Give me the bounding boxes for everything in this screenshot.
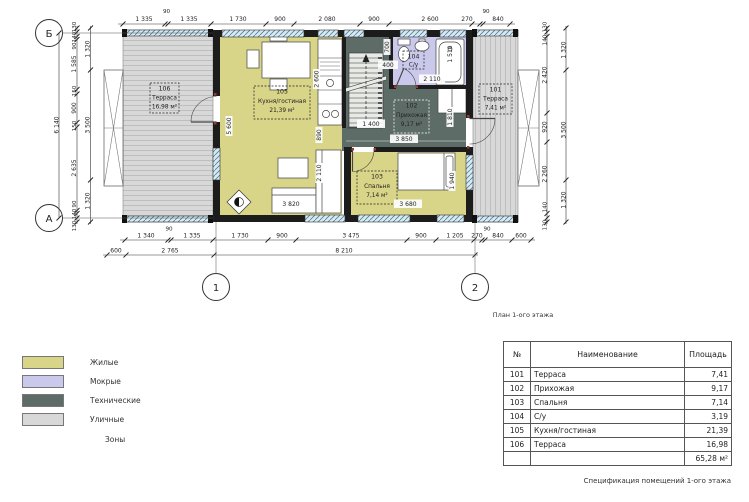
svg-text:Терраса: Терраса bbox=[482, 97, 508, 103]
dim-label: 1 320 bbox=[561, 41, 568, 58]
cell-empty bbox=[504, 452, 531, 466]
window bbox=[400, 30, 427, 37]
window bbox=[466, 155, 473, 190]
cell-num: 106 bbox=[504, 438, 531, 452]
dim-label: 1 320 bbox=[85, 40, 92, 57]
bed bbox=[398, 153, 455, 190]
dim-label: 2 420 bbox=[542, 66, 549, 83]
dim-label: 1 335 bbox=[183, 233, 200, 240]
legend-caption: Зоны bbox=[105, 435, 202, 444]
chair bbox=[247, 50, 259, 68]
legend-label: Мокрые bbox=[90, 377, 121, 386]
dim-label: 270 bbox=[471, 233, 483, 240]
svg-text:105: 105 bbox=[276, 89, 288, 96]
cell-empty bbox=[531, 452, 685, 466]
dim-label: 150 bbox=[72, 120, 78, 131]
dim-label: 90 bbox=[483, 227, 491, 233]
window bbox=[213, 148, 220, 180]
window bbox=[305, 215, 345, 222]
dim-label: 1 730 bbox=[231, 233, 248, 240]
zones-legend: Жилые Мокрые Технические Уличные Зоны bbox=[22, 356, 202, 444]
dim-label: 920 bbox=[542, 121, 549, 133]
dim-label: 1 320 bbox=[85, 192, 92, 209]
dim-label: 130 bbox=[72, 21, 78, 32]
dim-label: 2 600 bbox=[421, 16, 438, 23]
table-row: 101 Терраса 7,41 bbox=[504, 368, 732, 382]
cell-name: Прихожая bbox=[531, 382, 685, 396]
svg-text:Терраса: Терраса bbox=[151, 96, 177, 102]
dim-label: 130 bbox=[543, 21, 549, 32]
dim-label: 1 335 bbox=[135, 16, 152, 23]
dim-label: 900 bbox=[274, 16, 286, 23]
cell-num: 102 bbox=[504, 382, 531, 396]
dining-table bbox=[262, 42, 310, 78]
svg-text:7,14 м²: 7,14 м² bbox=[366, 192, 387, 199]
svg-text:16,98 м²: 16,98 м² bbox=[152, 104, 177, 111]
dim-label: 2 635 bbox=[71, 159, 78, 176]
svg-text:102: 102 bbox=[406, 103, 418, 110]
svg-text:Спальня: Спальня bbox=[364, 184, 390, 190]
axis-label-1: 1 bbox=[213, 283, 219, 294]
legend-item: Жилые bbox=[22, 356, 202, 369]
table-row: 103 Спальня 7,14 bbox=[504, 396, 732, 410]
legend-label: Уличные bbox=[90, 415, 124, 424]
dim-label: 3 680 bbox=[399, 201, 416, 208]
window bbox=[437, 215, 464, 222]
dim-label: 1 335 bbox=[180, 16, 197, 23]
cell-num: 101 bbox=[504, 368, 531, 382]
dim-label: 140 bbox=[543, 34, 549, 45]
cell-num: 105 bbox=[504, 424, 531, 438]
spec-table: № Наименование Площадь 101 Терраса 7,41 … bbox=[503, 341, 732, 466]
svg-text:101: 101 bbox=[490, 87, 502, 94]
dim-label: 700 bbox=[384, 41, 391, 53]
col-header-num: № bbox=[504, 342, 531, 368]
cell-name: Спальня bbox=[531, 396, 685, 410]
dim-label: 90 bbox=[72, 200, 78, 208]
dim-label: 3 475 bbox=[342, 233, 359, 240]
dim-label: 2 110 bbox=[316, 164, 323, 181]
dim-label: 3 820 bbox=[282, 201, 299, 208]
dim-label: 1 510 bbox=[447, 45, 454, 62]
dim-label: 8 210 bbox=[335, 248, 352, 255]
legend-label: Технические bbox=[90, 396, 141, 405]
dim-label: 90 bbox=[72, 42, 78, 50]
dim-label: 900 bbox=[276, 233, 288, 240]
dim-label: 3 500 bbox=[85, 116, 92, 133]
axis-label-a: А bbox=[46, 214, 53, 225]
dim-label: 1 320 bbox=[561, 191, 568, 208]
dim-label: 840 bbox=[492, 233, 504, 240]
dim-label: 5 600 bbox=[226, 117, 233, 134]
spec-table-caption: Спецификация помещений 1-ого этажа bbox=[503, 477, 731, 485]
dim-label: 90 bbox=[163, 9, 171, 15]
dim-label: 1 340 bbox=[137, 233, 154, 240]
dim-label: 900 bbox=[71, 102, 78, 114]
outdoor-stairs-right bbox=[518, 70, 539, 186]
outdoor-stairs-left bbox=[104, 70, 123, 186]
svg-text:Прихожая: Прихожая bbox=[396, 113, 427, 119]
dim-label: 1 585 bbox=[71, 55, 78, 72]
dim-label: 2 765 bbox=[161, 248, 178, 255]
col-header-name: Наименование bbox=[531, 342, 685, 368]
table-row: 104 С/у 3,19 bbox=[504, 410, 732, 424]
dim-label: 150 bbox=[72, 85, 78, 96]
svg-text:9,17 м²: 9,17 м² bbox=[401, 121, 422, 128]
table-total-row: 65,28 м² bbox=[504, 452, 732, 466]
floor-plan: 106 Терраса 16,98 м² 105 Кухня/гостиная … bbox=[0, 0, 749, 340]
svg-text:7,41 м²: 7,41 м² bbox=[485, 105, 506, 112]
svg-text:Кухня/гостиная: Кухня/гостиная bbox=[258, 99, 306, 105]
legend-item: Мокрые bbox=[22, 375, 202, 388]
cell-area: 16,98 bbox=[685, 438, 732, 452]
cell-name: Терраса bbox=[531, 438, 685, 452]
svg-text:103: 103 bbox=[371, 174, 383, 181]
terrace-railing bbox=[473, 30, 518, 36]
col-header-area: Площадь bbox=[685, 342, 732, 368]
dim-label: 600 bbox=[515, 233, 527, 240]
coffee-table bbox=[278, 158, 308, 178]
legend-swatch-outdoor bbox=[22, 413, 64, 426]
axis-label-b: Б bbox=[46, 29, 53, 40]
dim-label: 3 850 bbox=[395, 136, 412, 143]
cell-area: 21,39 bbox=[685, 424, 732, 438]
legend-swatch-wet bbox=[22, 375, 64, 388]
dim-label: 890 bbox=[316, 129, 323, 141]
dim-label: 3 500 bbox=[561, 121, 568, 138]
legend-item: Уличные bbox=[22, 413, 202, 426]
kitchen-counter bbox=[318, 39, 342, 125]
terrace-railing bbox=[124, 216, 213, 222]
dim-label: 130 bbox=[72, 220, 78, 231]
axis-label-2: 2 bbox=[472, 283, 478, 294]
window bbox=[318, 30, 338, 37]
dim-label: 1 205 bbox=[446, 233, 463, 240]
dim-label: 270 bbox=[461, 16, 473, 23]
dim-label: 1 730 bbox=[229, 16, 246, 23]
dim-label: 1 810 bbox=[447, 108, 454, 125]
dim-label: 1 400 bbox=[362, 121, 379, 128]
svg-text:104: 104 bbox=[408, 54, 420, 61]
dim-label: 900 bbox=[368, 16, 380, 23]
dim-label: 900 bbox=[415, 233, 427, 240]
cell-area: 9,17 bbox=[685, 382, 732, 396]
cell-name: С/у bbox=[531, 410, 685, 424]
dim-label: 2 110 bbox=[423, 76, 440, 83]
plan-caption: План 1-ого этажа bbox=[493, 311, 553, 319]
legend-label: Жилые bbox=[90, 358, 118, 367]
cell-num: 103 bbox=[504, 396, 531, 410]
drawing-sheet: 106 Терраса 16,98 м² 105 Кухня/гостиная … bbox=[0, 0, 749, 502]
terrace-railing bbox=[473, 216, 518, 222]
dim-label: 6 140 bbox=[54, 116, 61, 133]
window bbox=[222, 30, 304, 37]
dim-label: 90 bbox=[165, 227, 173, 233]
dim-label: 840 bbox=[492, 16, 504, 23]
table-row: 105 Кухня/гостиная 21,39 bbox=[504, 424, 732, 438]
window bbox=[358, 215, 410, 222]
table-row: 102 Прихожая 9,17 bbox=[504, 382, 732, 396]
cell-num: 104 bbox=[504, 410, 531, 424]
legend-swatch-living bbox=[22, 356, 64, 369]
kitchen-sink bbox=[331, 110, 338, 117]
svg-text:С/у: С/у bbox=[409, 63, 419, 69]
dim-label: 140 bbox=[72, 208, 78, 219]
table-header-row: № Наименование Площадь bbox=[504, 342, 732, 368]
table-row: 106 Терраса 16,98 bbox=[504, 438, 732, 452]
dim-label: 140 bbox=[543, 201, 549, 212]
kitchen-sink bbox=[322, 110, 329, 117]
dim-label: 2 260 bbox=[542, 165, 549, 182]
cell-total-area: 65,28 м² bbox=[685, 452, 732, 466]
dim-label: 130 bbox=[543, 219, 549, 230]
cell-name: Кухня/гостиная bbox=[531, 424, 685, 438]
dim-label: 1 940 bbox=[449, 172, 456, 189]
cell-area: 7,14 bbox=[685, 396, 732, 410]
dim-label: 400 bbox=[382, 62, 394, 69]
cell-name: Терраса bbox=[531, 368, 685, 382]
legend-swatch-technical bbox=[22, 394, 64, 407]
svg-text:106: 106 bbox=[159, 86, 171, 93]
cell-area: 3,19 bbox=[685, 410, 732, 424]
svg-text:21,39 м²: 21,39 м² bbox=[269, 107, 294, 114]
cell-area: 7,41 bbox=[685, 368, 732, 382]
dim-label: 2 600 bbox=[314, 70, 321, 87]
dim-label: 2 080 bbox=[318, 16, 335, 23]
legend-item: Технические bbox=[22, 394, 202, 407]
dim-label: 90 bbox=[482, 9, 490, 15]
window bbox=[440, 30, 466, 37]
window bbox=[344, 30, 364, 37]
dim-label: 600 bbox=[110, 248, 122, 255]
